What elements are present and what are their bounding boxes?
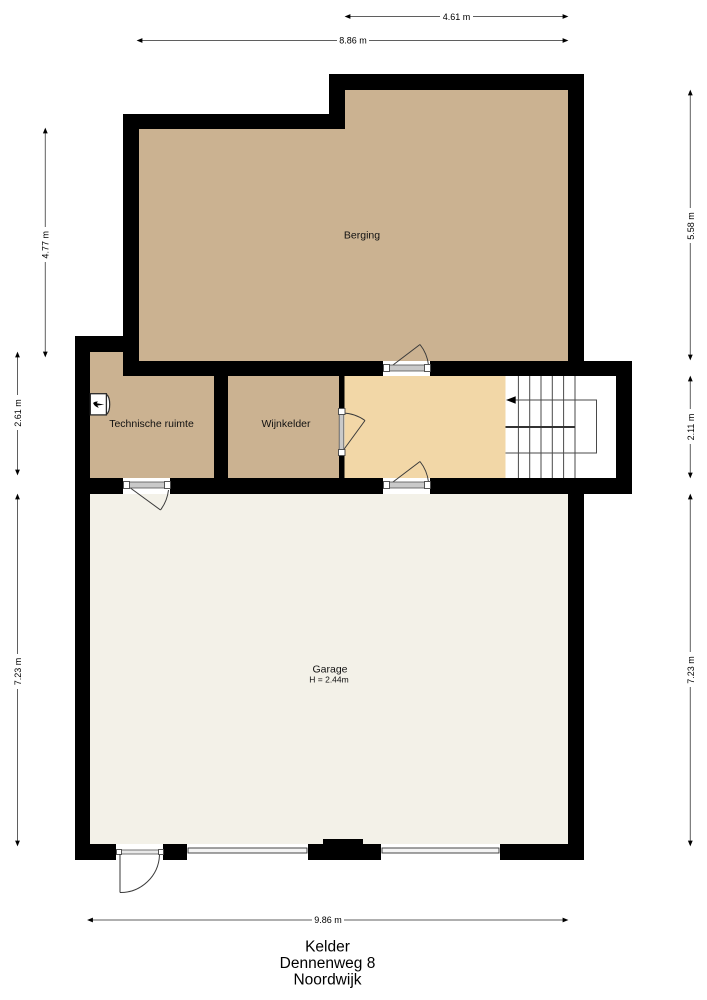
svg-text:Kelder: Kelder [305,939,350,956]
svg-text:4.61 m: 4.61 m [443,12,471,22]
svg-text:Berging: Berging [344,230,380,242]
svg-text:5.58 m: 5.58 m [686,212,696,240]
svg-text:4.77 m: 4.77 m [41,231,51,259]
svg-text:Noordwijk: Noordwijk [293,972,361,989]
svg-text:Dennenweg 8: Dennenweg 8 [280,955,376,972]
svg-text:7.23 m: 7.23 m [13,658,23,686]
svg-text:2.11 m: 2.11 m [686,414,696,441]
svg-text:H = 2.44m: H = 2.44m [309,675,348,685]
svg-text:7.23 m: 7.23 m [686,656,696,684]
svg-text:Wijnkelder: Wijnkelder [261,418,311,430]
svg-text:9.86 m: 9.86 m [314,915,342,925]
svg-text:2.61 m: 2.61 m [13,399,23,427]
svg-text:Technische ruimte: Technische ruimte [109,418,194,430]
svg-text:8.86 m: 8.86 m [339,36,367,46]
